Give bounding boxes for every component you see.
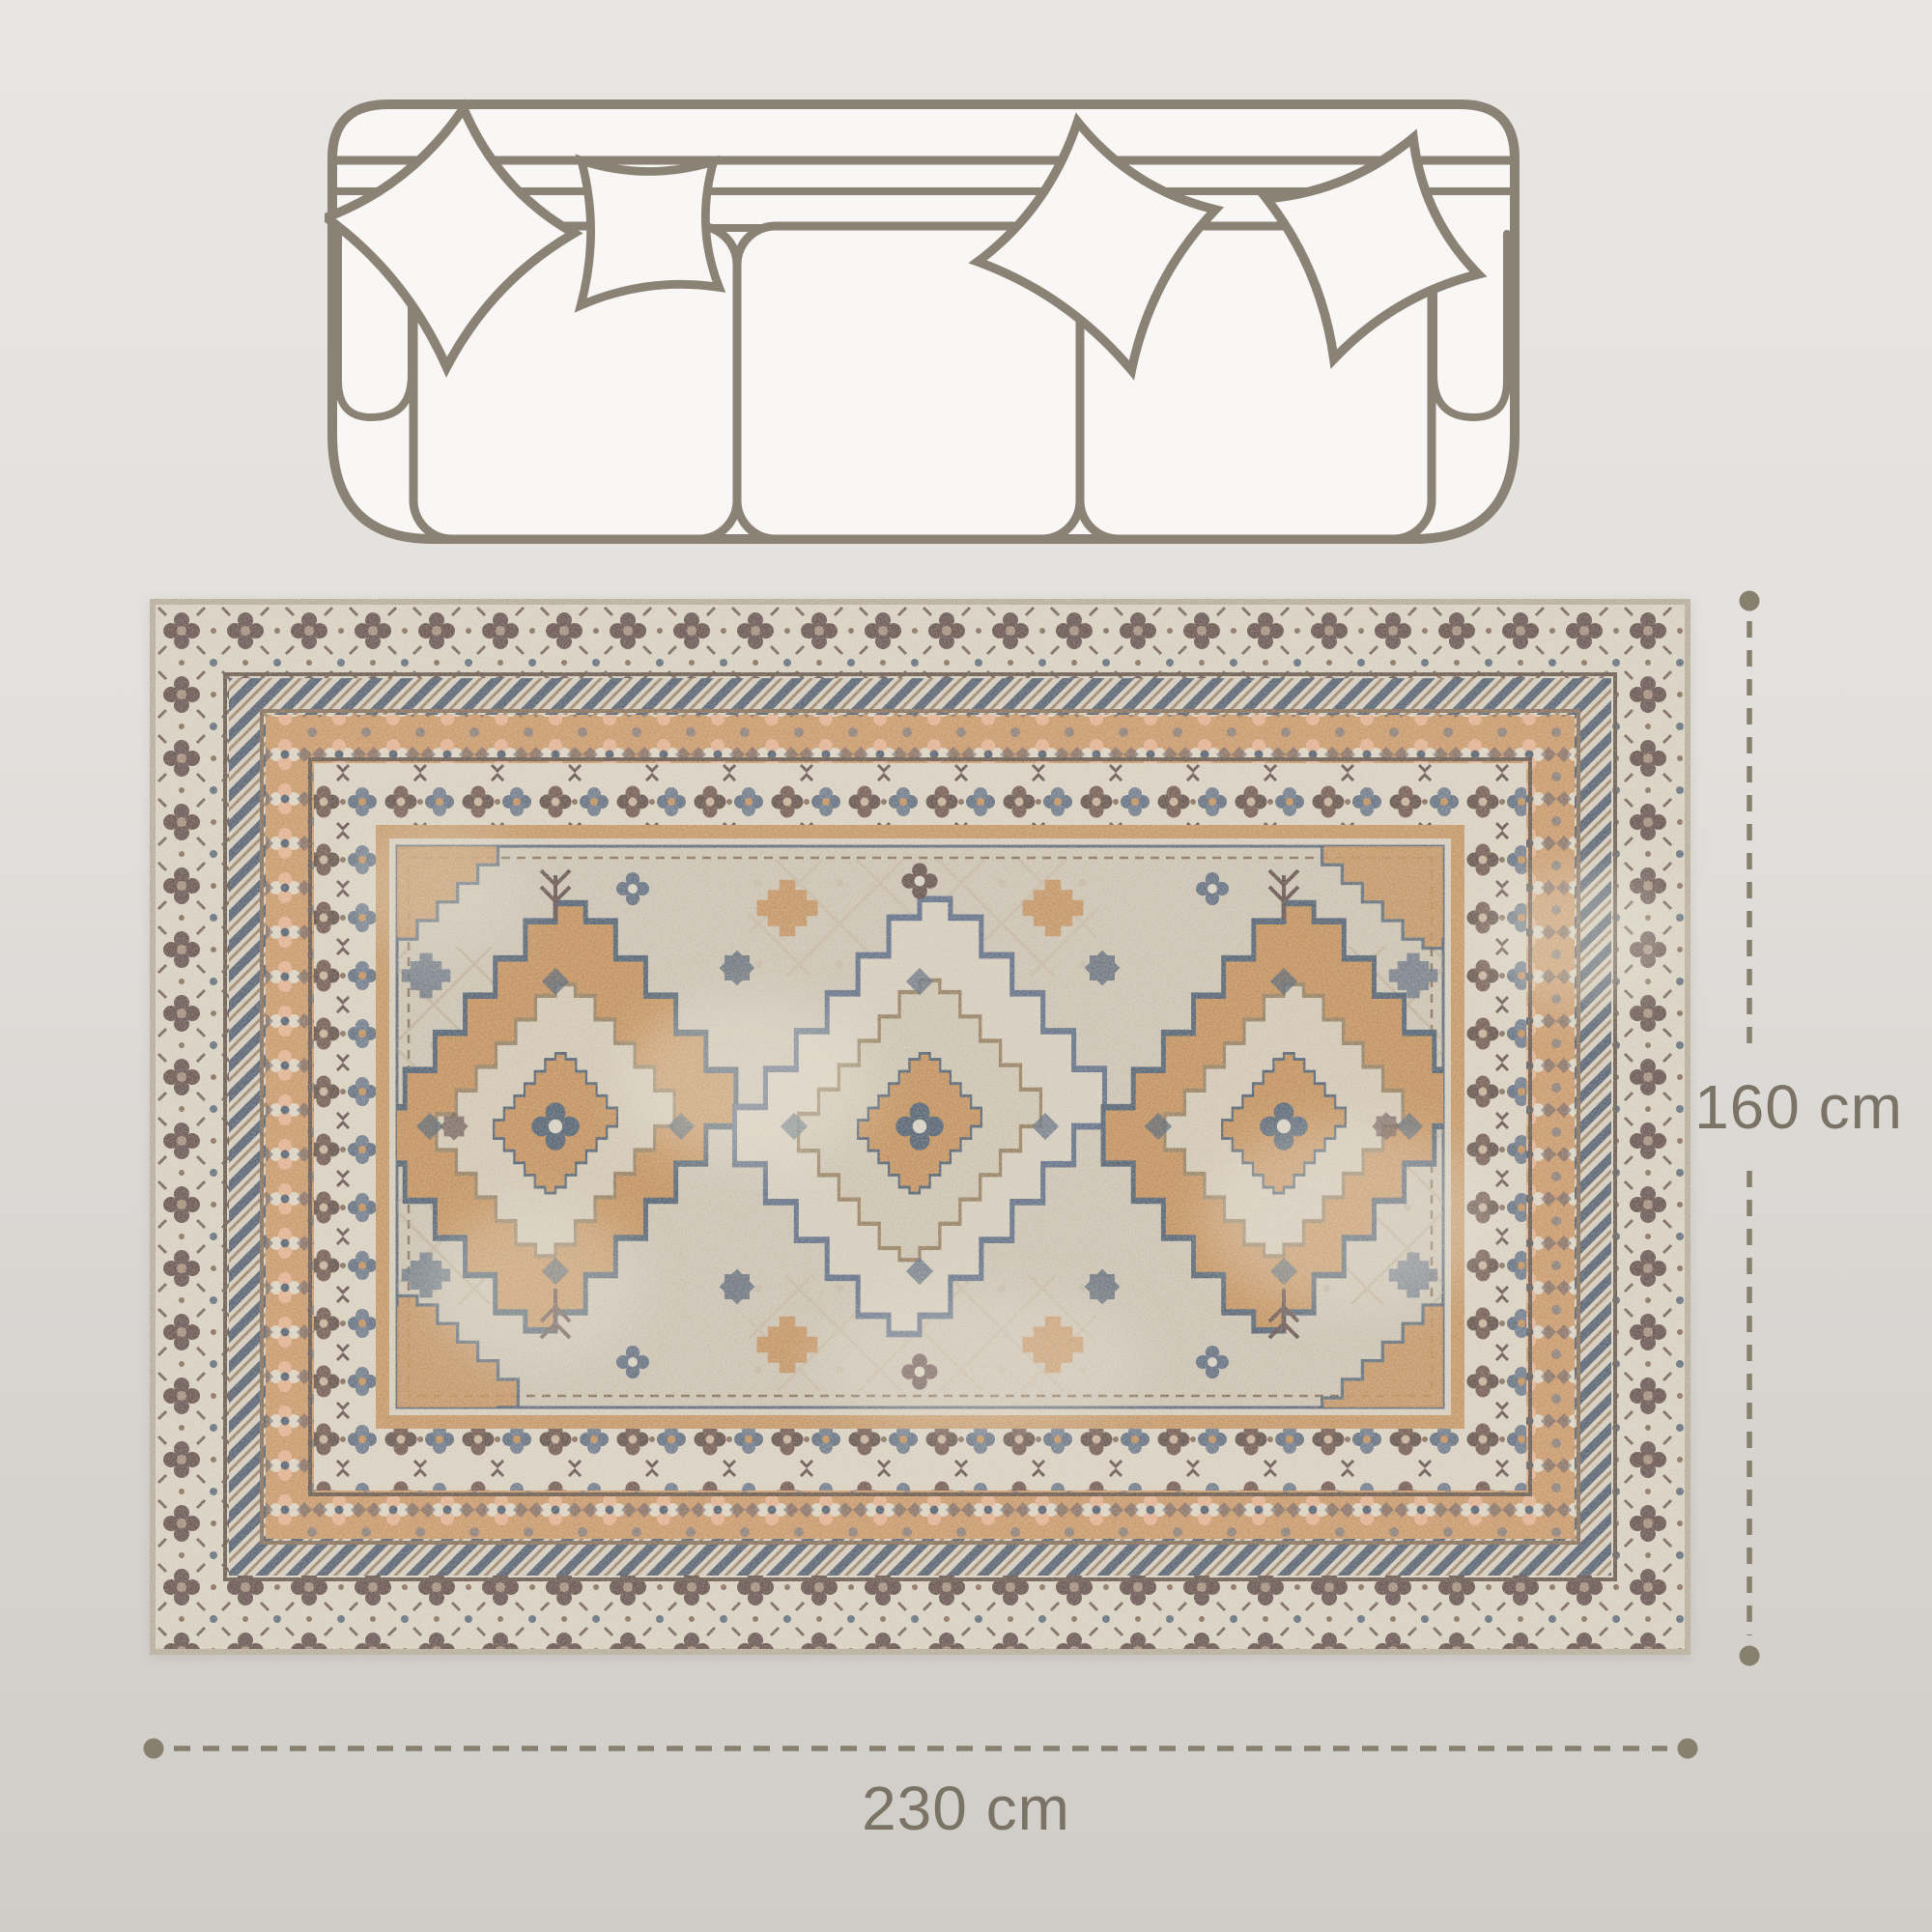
sofa-icon xyxy=(325,99,1520,548)
dimension-endpoint-dot xyxy=(144,1739,164,1759)
dimension-line-width xyxy=(144,1739,1698,1759)
dimension-endpoint-dot xyxy=(1740,591,1760,611)
dimension-endpoint-dot xyxy=(1678,1739,1698,1759)
rug-image xyxy=(150,599,1690,1655)
width-dimension-label: 230 cm xyxy=(792,1770,1140,1847)
dimension-endpoint-dot xyxy=(1740,1646,1760,1666)
height-dimension-label: 160 cm xyxy=(1625,1068,1932,1146)
product-dimension-diagram: 160 cm 230 cm xyxy=(0,0,1932,1932)
